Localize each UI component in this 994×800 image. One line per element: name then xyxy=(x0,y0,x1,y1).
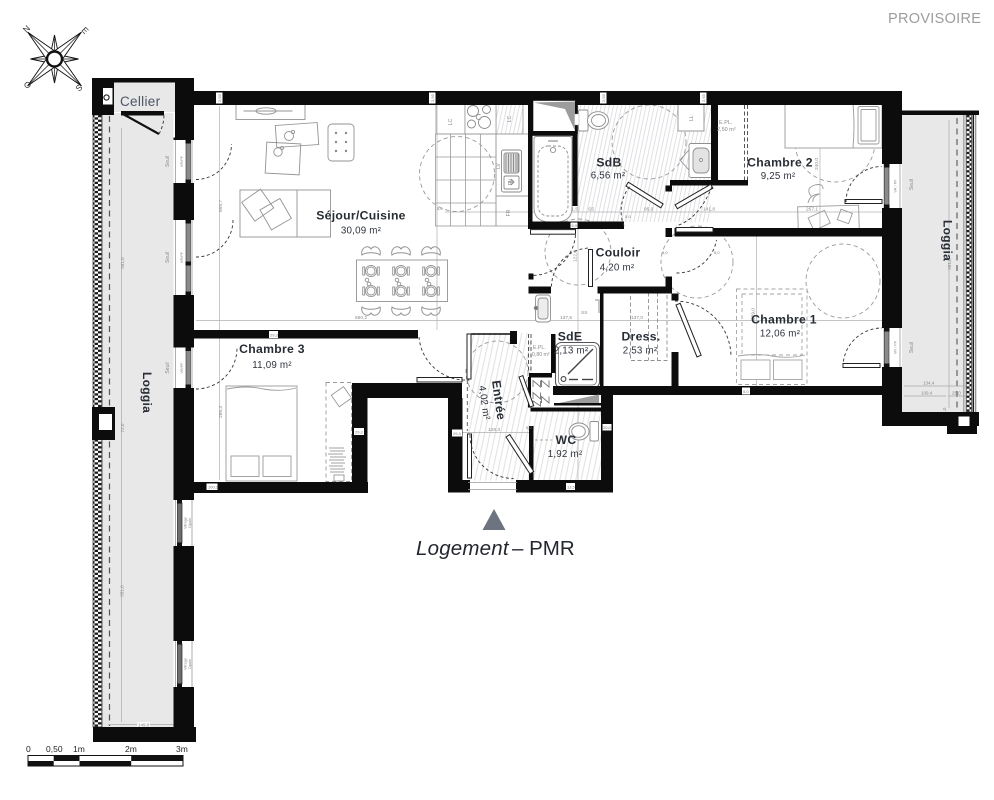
svg-text:5,0: 5,0 xyxy=(572,223,578,228)
svg-text:95,0: 95,0 xyxy=(644,207,654,213)
svg-text:20,0: 20,0 xyxy=(603,425,612,430)
svg-text:E.PL.: E.PL. xyxy=(719,120,733,126)
svg-text:Dress.: Dress. xyxy=(621,330,660,344)
svg-text:29,3: 29,3 xyxy=(453,431,462,436)
svg-text:137,0: 137,0 xyxy=(631,315,643,321)
svg-text:100,3: 100,3 xyxy=(208,485,219,490)
svg-text:EV: EV xyxy=(508,178,514,185)
svg-text:Logement: Logement xyxy=(416,537,510,560)
svg-text:Vitrage: Vitrage xyxy=(184,658,188,670)
svg-text:VR / PF: VR / PF xyxy=(894,179,898,193)
svg-text:660,2: 660,2 xyxy=(355,315,367,321)
svg-text:0: 0 xyxy=(26,744,31,754)
svg-text:2m: 2m xyxy=(125,744,137,754)
svg-text:Couloir: Couloir xyxy=(596,246,641,260)
svg-text:VR/PF: VR/PF xyxy=(180,155,184,167)
svg-text:30,09 m²: 30,09 m² xyxy=(341,226,382,237)
svg-text:VR / PF: VR / PF xyxy=(894,340,898,354)
svg-text:29,3: 29,3 xyxy=(270,333,279,338)
svg-text:Loggia: Loggia xyxy=(140,372,154,413)
svg-text:2,50 m²: 2,50 m² xyxy=(717,127,736,133)
svg-text:5,0: 5,0 xyxy=(714,250,720,255)
svg-text:LV: LV xyxy=(496,162,502,168)
svg-text:3m: 3m xyxy=(176,744,188,754)
svg-text:Vitrage: Vitrage xyxy=(184,517,188,529)
svg-text:SS: SS xyxy=(581,310,587,316)
svg-text:2,93: 2,93 xyxy=(430,93,435,102)
svg-text:29,3: 29,3 xyxy=(355,430,364,435)
svg-text:Cellier: Cellier xyxy=(120,94,161,109)
svg-text:9,25 m²: 9,25 m² xyxy=(761,171,796,182)
svg-text:5,0: 5,0 xyxy=(743,389,749,394)
svg-text:Opale: Opale xyxy=(188,659,192,669)
svg-text:Chambre 3: Chambre 3 xyxy=(239,342,305,356)
svg-text:72,0: 72,0 xyxy=(120,423,125,432)
svg-text:128,3: 128,3 xyxy=(488,427,500,433)
svg-text:5,0: 5,0 xyxy=(437,206,443,211)
svg-text:SdE: SdE xyxy=(558,330,583,344)
svg-text:PROVISOIRE: PROVISOIRE xyxy=(888,11,981,27)
svg-text:2,93: 2,93 xyxy=(701,93,706,102)
svg-text:141,8: 141,8 xyxy=(703,207,715,213)
svg-text:2,93: 2,93 xyxy=(601,93,606,102)
svg-text:SdB: SdB xyxy=(596,156,621,170)
svg-text:240,0: 240,0 xyxy=(814,158,820,170)
svg-text:581,0: 581,0 xyxy=(120,585,125,597)
svg-text:0,80 m²: 0,80 m² xyxy=(532,352,550,358)
svg-text:1m: 1m xyxy=(73,744,85,754)
svg-text:109,4: 109,4 xyxy=(921,391,933,396)
svg-text:12,06 m²: 12,06 m² xyxy=(760,329,801,340)
svg-text:Opale: Opale xyxy=(188,518,192,528)
svg-text:137,5: 137,5 xyxy=(560,315,572,321)
svg-text:Seuil: Seuil xyxy=(165,362,171,373)
svg-text:– PMR: – PMR xyxy=(512,537,575,560)
svg-text:Seuil: Seuil xyxy=(909,179,915,190)
svg-text:Séjour/Cuisine: Séjour/Cuisine xyxy=(316,209,406,223)
svg-text:13,5: 13,5 xyxy=(567,485,576,490)
svg-text:Seuil: Seuil xyxy=(165,252,171,263)
svg-text:SS: SS xyxy=(588,207,594,213)
svg-text:Chambre 1: Chambre 1 xyxy=(751,313,817,327)
svg-text:11,09 m²: 11,09 m² xyxy=(252,360,292,371)
svg-text:FR: FR xyxy=(506,209,512,216)
svg-text:581,0: 581,0 xyxy=(120,257,125,269)
svg-text:2,53 m²: 2,53 m² xyxy=(623,346,658,357)
svg-text:134,4: 134,4 xyxy=(923,381,935,386)
svg-text:6,56 m²: 6,56 m² xyxy=(591,171,626,182)
svg-text:655,7: 655,7 xyxy=(218,200,224,212)
svg-text:LL: LL xyxy=(689,115,695,121)
svg-text:LC: LC xyxy=(448,118,454,125)
svg-text:Seuil: Seuil xyxy=(909,342,915,353)
svg-text:5,0: 5,0 xyxy=(625,214,631,219)
svg-text:Loggia: Loggia xyxy=(941,220,955,261)
svg-text:VR/PF: VR/PF xyxy=(180,362,184,374)
svg-text:Chambre 2: Chambre 2 xyxy=(747,156,813,170)
svg-text:LC: LC xyxy=(507,115,513,122)
svg-text:Seuil: Seuil xyxy=(165,156,171,167)
svg-text:E.PL.: E.PL. xyxy=(533,345,546,351)
svg-text:1,92 m²: 1,92 m² xyxy=(548,449,583,460)
svg-text:WC: WC xyxy=(556,433,577,447)
svg-text:122,0: 122,0 xyxy=(573,250,579,262)
svg-text:VR/PF: VR/PF xyxy=(180,251,184,263)
svg-text:289,3: 289,3 xyxy=(218,406,224,418)
svg-text:25,0: 25,0 xyxy=(952,391,961,396)
svg-text:5,0: 5,0 xyxy=(662,250,668,255)
svg-text:2,93: 2,93 xyxy=(217,93,222,102)
svg-text:267,1: 267,1 xyxy=(806,207,818,213)
svg-text:0,50: 0,50 xyxy=(46,744,63,754)
svg-text:5,0: 5,0 xyxy=(526,425,532,430)
svg-text:2,13 m²: 2,13 m² xyxy=(554,346,589,357)
svg-text:149,0: 149,0 xyxy=(138,723,150,728)
svg-text:4,20 m²: 4,20 m² xyxy=(600,263,635,274)
